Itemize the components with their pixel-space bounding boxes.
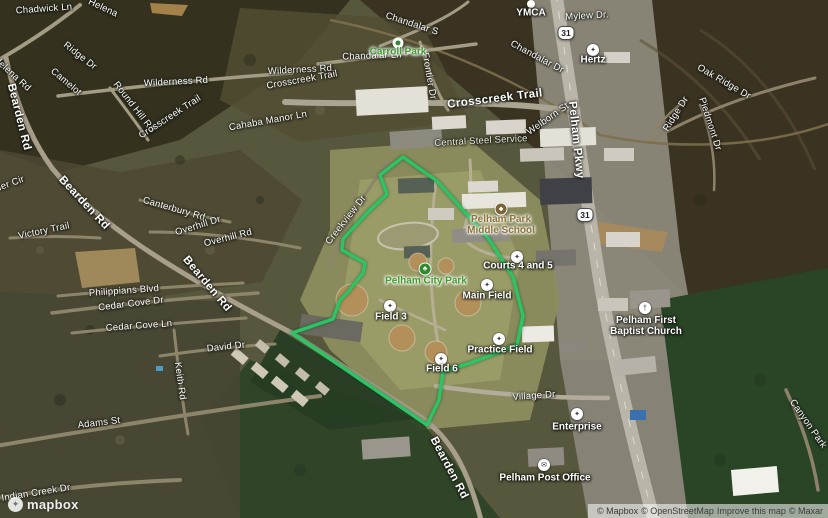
attribution-bar: © Mapbox© OpenStreetMapImprove this map©… — [588, 504, 828, 518]
enterprise-icon: ✦ — [571, 408, 583, 420]
road-label: Village Dr — [512, 389, 556, 403]
road-label: Chandalar S — [384, 10, 440, 37]
practice-field-icon: ✦ — [493, 333, 505, 345]
attribution-link-mapbox[interactable]: © Mapbox — [597, 506, 638, 516]
road-label: Frontier Dr — [419, 52, 438, 101]
road-label: Keith Rd — [172, 361, 188, 400]
road-label: Ridge Dr — [61, 40, 99, 73]
road-label: Wilderness Rd — [144, 75, 209, 89]
poi-label: Pelham Post Office — [499, 474, 590, 485]
road-label: Creekview Dr — [323, 193, 368, 247]
poi-label: Practice Field — [467, 346, 532, 357]
road-label: Chandalar Dr — [508, 38, 565, 75]
road-label: Cedar Cove Ln — [105, 318, 172, 334]
road-label: Piedmont Dr — [696, 96, 723, 152]
main-field-icon: ✦ — [481, 279, 493, 291]
road-label: Crosscreek Trail — [447, 87, 544, 111]
road-label: Canterbury Rd — [142, 195, 207, 223]
pelham-first-baptist-church-icon: † — [639, 302, 651, 314]
road-label: her Cir — [0, 174, 26, 195]
mapbox-wordmark: mapbox — [27, 497, 79, 512]
attribution-link-maxar[interactable]: © Maxar — [789, 506, 823, 516]
poi-label: Main Field — [463, 292, 512, 303]
map-canvas[interactable]: Chadwick LnHelenaRidge DrHelena RdCamelo… — [0, 0, 828, 518]
poi-label: Pelham FirstBaptist Church — [610, 316, 682, 338]
road-label: David Dr — [206, 340, 246, 355]
poi-label: Pelham ParkMiddle School — [467, 215, 535, 237]
road-label: Central Steel Service — [434, 133, 528, 149]
road-label: Welborn St — [525, 100, 571, 137]
road-label: Ridge Dr — [661, 95, 691, 134]
poi-label: Field 6 — [426, 365, 458, 376]
poi-label: Field 3 — [375, 313, 407, 324]
road-label: Pelham Pkwy — [566, 101, 586, 180]
mapbox-logo[interactable]: ✦ mapbox — [8, 497, 79, 512]
route-shield-us31: 31 — [558, 26, 575, 40]
field-3-icon: ✦ — [384, 300, 396, 312]
poi-label: YMCA — [516, 9, 545, 20]
poi-label: Carroll Park — [370, 48, 427, 59]
poi-label: Courts 4 and 5 — [483, 262, 552, 273]
road-label: Overhill Rd — [203, 227, 253, 250]
label-layer: Chadwick LnHelenaRidge DrHelena RdCamelo… — [0, 0, 828, 518]
poi-label: Hertz — [580, 56, 605, 67]
road-label: Bearden Rd — [180, 254, 233, 314]
road-label: Camelot — [48, 66, 83, 98]
road-label: Chadwick Ln — [15, 2, 72, 17]
mapbox-logo-icon: ✦ — [8, 497, 23, 512]
route-shield-us31: 31 — [577, 208, 594, 222]
road-label: Canyon Park — [787, 397, 828, 450]
road-label: Helena — [86, 0, 119, 20]
pelham-post-office-icon: ✉ — [538, 459, 550, 471]
attribution-link-improve-this-map[interactable]: Improve this map — [717, 506, 786, 516]
road-label: Mylew Dr. — [565, 9, 609, 22]
attribution-link-openstreetmap[interactable]: © OpenStreetMap — [641, 506, 714, 516]
road-label: Bearden Rd — [5, 82, 33, 151]
road-label: Bearden Rd — [428, 435, 471, 501]
poi-label: Pelham City Park — [385, 277, 467, 288]
road-label: Adams St — [77, 415, 121, 431]
poi-label: Enterprise — [552, 423, 601, 434]
pelham-city-park-icon: ♣ — [419, 263, 432, 276]
road-label: Victory Trail — [17, 220, 70, 242]
road-label: Cahaba Manor Ln — [228, 109, 308, 134]
